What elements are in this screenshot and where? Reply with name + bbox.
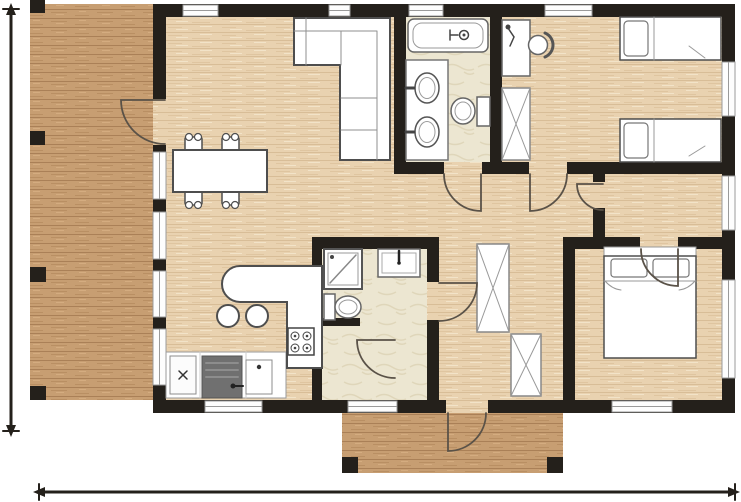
dining-table	[173, 150, 267, 192]
deck-floor	[30, 4, 153, 400]
bar-stool	[246, 305, 268, 327]
bathtub	[408, 19, 488, 52]
stove-burner-dot	[306, 347, 309, 350]
master-headboard	[604, 247, 696, 256]
stove-burner-dot	[294, 335, 297, 338]
bed-pillow	[653, 259, 689, 277]
wall-bath2-east-b	[427, 320, 439, 400]
wall-hall-north-c	[567, 162, 722, 174]
deck-post	[30, 267, 46, 282]
dining-chair-knob	[223, 134, 230, 141]
wall-office-west-a	[593, 174, 605, 182]
dining-chair-knob	[195, 202, 202, 209]
bed-pillow	[624, 123, 648, 158]
dining-chair-knob	[223, 202, 230, 209]
bathtub-faucet-dot	[463, 34, 466, 37]
wall-exterior-top	[153, 4, 735, 17]
shower-head	[330, 255, 334, 259]
bed-pillow	[611, 259, 647, 277]
deck-post	[30, 0, 45, 13]
wall-exterior-left-upper	[153, 4, 166, 99]
kitchen-unit-knob	[257, 365, 261, 369]
wall-bath2-east-a	[427, 249, 439, 282]
wall-living-bath	[394, 17, 406, 174]
deck-post	[30, 131, 45, 145]
dining-chair-knob	[186, 202, 193, 209]
floor-plan	[0, 0, 741, 502]
entry-porch-floor	[342, 412, 563, 473]
porch-post	[342, 457, 358, 473]
wall-bath2-north	[312, 237, 439, 249]
deck-post	[30, 386, 46, 400]
wall-bath-bedroom1	[490, 17, 502, 174]
floor-plan-image	[0, 0, 741, 502]
stove-burner-dot	[294, 347, 297, 350]
entry-door-threshold	[446, 400, 488, 413]
wall-master-west	[563, 249, 575, 400]
deck-door-threshold	[153, 99, 166, 145]
wall-office-west-b	[593, 208, 605, 237]
bed-pillow	[624, 21, 648, 56]
toilet-tank	[324, 294, 335, 320]
porch-post	[547, 457, 563, 473]
dining-chair-knob	[232, 202, 239, 209]
dining-chair-knob	[186, 134, 193, 141]
wall-hall-north-b	[482, 162, 529, 174]
dining-chair-knob	[195, 134, 202, 141]
bar-stool	[217, 305, 239, 327]
washbasin-faucet-dot	[397, 261, 401, 265]
desk-lamp-base	[506, 25, 511, 30]
stove-burner-dot	[306, 335, 309, 338]
desk-chair	[529, 36, 548, 55]
toilet-tank	[477, 97, 490, 126]
kitchen-faucet-base	[231, 384, 236, 389]
wall-hall-north-a	[394, 162, 444, 174]
dining-chair-knob	[232, 134, 239, 141]
